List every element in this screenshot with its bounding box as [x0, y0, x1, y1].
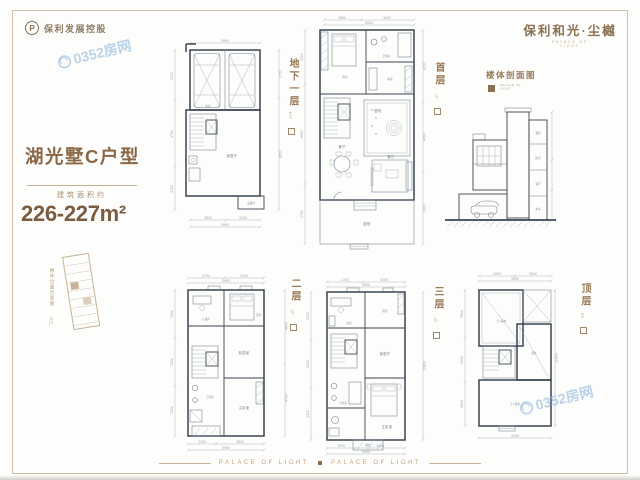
svg-text:2900: 2900: [170, 310, 174, 318]
svg-text:5900: 5900: [511, 434, 519, 438]
floorplan-second-floor: 2750 3150 5900 2900 3300 3000 4600 4700 …: [168, 258, 292, 458]
svg-text:5750: 5750: [170, 130, 174, 138]
entry-label: 入户: [48, 316, 54, 326]
room-label: 卧室: [256, 313, 262, 317]
floor-label-stamp: [580, 327, 587, 334]
section-subtitle: PALACE OF LIGHT: [500, 84, 540, 91]
stairs: [331, 334, 357, 368]
floor-tag: 1F: [434, 94, 437, 99]
room-label: 上人露台: [496, 319, 507, 323]
footer-logo-icon: [317, 460, 323, 466]
svg-text:3650: 3650: [204, 216, 212, 220]
svg-text:3900: 3900: [460, 310, 464, 318]
room-label: 主卧室: [382, 424, 393, 429]
dim-top: 5900: [221, 39, 229, 43]
svg-text:5900: 5900: [511, 277, 519, 281]
svg-text:2150: 2150: [279, 70, 283, 78]
watermark-icon: [517, 398, 535, 416]
section-logo-icon: [487, 84, 496, 93]
car-icon: [194, 54, 220, 108]
room-label: 卧室: [342, 75, 348, 79]
svg-text:2250: 2250: [239, 216, 247, 220]
locator-highlight-cell: [70, 282, 79, 290]
room-label: 车库: [205, 104, 211, 108]
title-divider: [27, 185, 137, 186]
developer-name: 保利发展控股: [44, 22, 107, 35]
svg-text:2700: 2700: [341, 278, 349, 282]
floorplan-brochure-page: P 保利发展控股 保利和光·尘樾 PALACE OF LIGHT 湖光墅C户型 …: [0, 0, 640, 480]
floor-label-stamp: [290, 324, 297, 331]
site-locator-map: [62, 253, 100, 330]
footer-text-left: PALACE OF LIGHT: [219, 460, 309, 466]
dining-table: [334, 156, 350, 172]
floor-label-second: 二层: [287, 278, 302, 303]
room-label: 起居室: [239, 350, 250, 355]
room-label: 厨房: [387, 77, 393, 81]
floor-label-ground: 首层: [431, 62, 446, 87]
project-name-english: PALACE OF LIGHT: [541, 40, 600, 48]
watermark: 0352房网: [55, 35, 134, 73]
svg-text:3300: 3300: [170, 185, 174, 193]
svg-text:4200: 4200: [306, 360, 310, 368]
svg-text:5900: 5900: [362, 283, 370, 287]
poly-logo-icon: P: [25, 21, 39, 35]
floor-tag: RF: [580, 313, 583, 319]
area-label: 建筑面积约: [27, 190, 137, 200]
bed: [332, 34, 356, 66]
project-name: 保利和光·尘樾: [505, 20, 635, 39]
svg-text:5900: 5900: [221, 223, 229, 227]
svg-text:3300: 3300: [460, 356, 464, 364]
svg-text:10800: 10800: [423, 361, 427, 371]
floor-tag: 3F: [433, 318, 436, 323]
svg-text:2750: 2750: [202, 274, 210, 278]
entry-door-arc: [334, 192, 342, 200]
living-rug: [372, 160, 408, 192]
svg-text:3300: 3300: [306, 410, 310, 418]
svg-text:3000: 3000: [170, 406, 174, 414]
courtyard: [364, 100, 410, 156]
svg-text:3400: 3400: [383, 16, 391, 20]
svg-text:3300: 3300: [306, 312, 310, 320]
floor-label-stamp: [288, 128, 295, 135]
room-label: 儿童房: [202, 317, 210, 321]
room-label: 露台: [365, 443, 371, 447]
room-label: 家庭厅: [380, 351, 391, 356]
svg-text:2600: 2600: [338, 16, 346, 20]
svg-text:4700: 4700: [285, 394, 289, 402]
floor-tag: B1F: [288, 112, 291, 120]
room-label: 卫生间: [206, 395, 214, 399]
svg-text:2150: 2150: [170, 72, 174, 80]
room-label: 餐厅: [338, 144, 346, 149]
room-label: 卫生间: [339, 401, 347, 405]
stairs: [190, 114, 216, 150]
room-label: 主卧室: [239, 405, 250, 410]
room-label: 露台: [535, 131, 541, 135]
svg-text:5900: 5900: [222, 279, 230, 283]
area-value: 226-227m²: [21, 201, 126, 227]
room-label: 露台: [531, 351, 537, 355]
floor-label-roof: 顶层: [577, 283, 592, 308]
svg-text:6900: 6900: [300, 130, 304, 138]
svg-text:2900: 2900: [423, 204, 427, 212]
room-label: 家庭厅: [227, 153, 238, 158]
svg-text:1950: 1950: [337, 444, 345, 448]
svg-text:4600: 4600: [285, 322, 289, 330]
floorplan-third-floor: 2700 3200 5900 3300 4200 3300 10800 1950…: [303, 262, 431, 458]
developer-logo: P 保利发展控股: [25, 21, 107, 35]
svg-text:3200: 3200: [380, 278, 388, 282]
floorplan-roof: 2900 3000 5900 3900 3300 3600 10800 5900…: [443, 262, 558, 454]
unit-title: 湖光墅C户型: [25, 143, 140, 169]
footer-text-right: PALACE OF LIGHT: [331, 460, 421, 466]
footer-line: [429, 463, 481, 464]
floor-label-stamp: [434, 108, 441, 115]
footer-line: [159, 463, 211, 464]
footer: PALACE OF LIGHT PALACE OF LIGHT: [0, 460, 640, 466]
section-title: 楼体剖面图: [486, 69, 536, 81]
svg-text:2900: 2900: [493, 272, 501, 276]
room-label: 卧室: [535, 156, 541, 160]
svg-text:3300: 3300: [170, 358, 174, 366]
room-label: 卧室: [382, 309, 388, 313]
room-label: 卫生间: [382, 54, 390, 58]
project-brand: 保利和光·尘樾 PALACE OF LIGHT: [505, 20, 635, 58]
svg-text:3000: 3000: [529, 272, 537, 276]
svg-text:5900: 5900: [362, 450, 370, 454]
locator-cell: [83, 297, 92, 305]
room-label: 车库: [535, 207, 541, 211]
svg-text:2700: 2700: [300, 210, 304, 218]
floorplan-basement: 5900 2150 5750 3300 2150 8850 3650 2250 …: [168, 36, 286, 238]
room-label: 客厅: [387, 154, 395, 159]
floorplan-ground-floor: 2600 3400 6000 3300 6900 2700 4100 4000 …: [298, 12, 430, 250]
section-subtitle-line2: LIGHT: [500, 88, 540, 92]
car-icon: [229, 54, 255, 108]
bed: [230, 294, 254, 320]
floor-label-stamp: [433, 332, 440, 339]
room-label: 书房: [346, 321, 352, 325]
svg-text:10800: 10800: [555, 353, 559, 363]
car-side-icon: [471, 201, 499, 218]
svg-text:3600: 3600: [460, 400, 464, 408]
room-label: 庭院: [374, 108, 382, 113]
watermark-text: 0352房网: [71, 35, 133, 69]
svg-text:6000: 6000: [365, 21, 373, 25]
watermark-icon: [55, 52, 73, 70]
bed: [371, 384, 397, 416]
svg-text:5900: 5900: [222, 446, 230, 450]
locator-caption: 楼体位置示意图: [49, 268, 55, 307]
floor-tag: 2F: [290, 310, 293, 315]
svg-text:3150: 3150: [240, 274, 248, 278]
svg-text:8850: 8850: [279, 150, 283, 158]
room-label: 客厅: [535, 182, 541, 186]
room-label: 庭院: [363, 221, 371, 226]
room-label: 设备间: [247, 201, 255, 205]
building-section-drawing: 露台 卧室 客厅 车库: [443, 100, 558, 238]
svg-text:3800: 3800: [236, 440, 244, 444]
svg-text:4100: 4100: [423, 62, 427, 70]
svg-text:2100: 2100: [198, 440, 206, 444]
svg-text:3300: 3300: [300, 53, 304, 61]
page-bottom-shadow: [0, 475, 640, 480]
svg-text:4000: 4000: [423, 133, 427, 141]
